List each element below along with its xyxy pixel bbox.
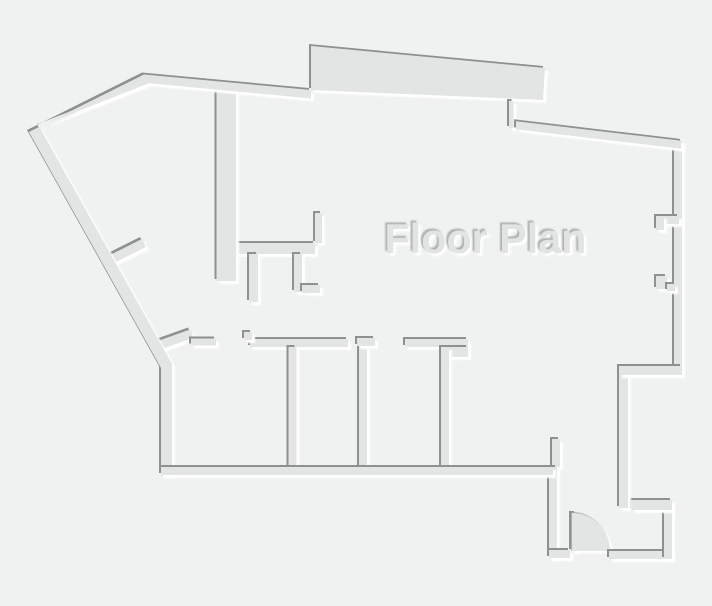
svg-text:Floor Plan: Floor Plan [385,215,587,262]
